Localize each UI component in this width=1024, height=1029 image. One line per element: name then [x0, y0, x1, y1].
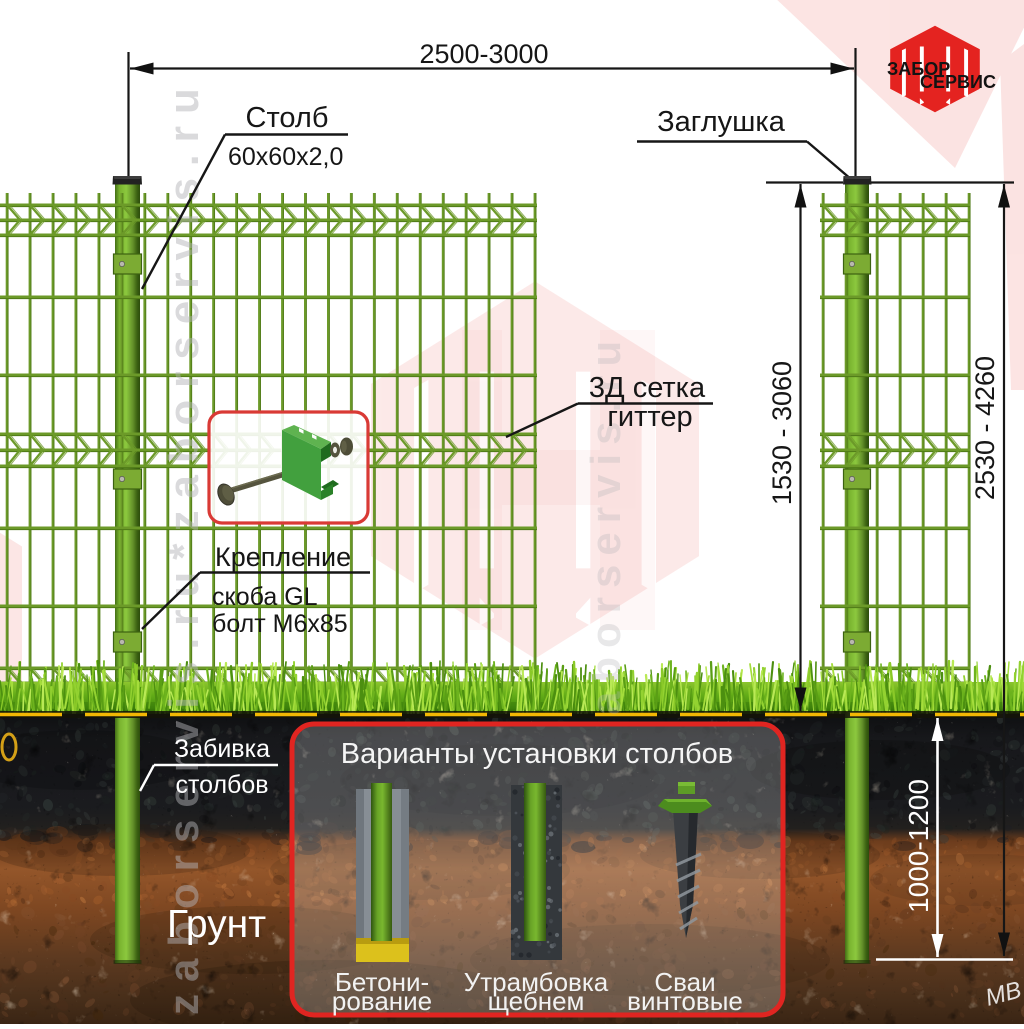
svg-text:Забивка: Забивка — [174, 735, 270, 763]
svg-text:zaborservis.ru*zaborservis.ru: zaborservis.ru*zaborservis.ru — [160, 76, 207, 1015]
svg-text:Столб: Столб — [246, 102, 329, 134]
svg-text:3Д сетка: 3Д сетка — [589, 372, 706, 404]
svg-text:Варианты установки столбов: Варианты установки столбов — [341, 738, 733, 770]
svg-text:скоба GL: скоба GL — [212, 583, 318, 611]
svg-text:столбов: столбов — [175, 771, 268, 799]
svg-text:рование: рование — [332, 986, 432, 1016]
svg-text:2530 - 4260: 2530 - 4260 — [970, 356, 1000, 500]
svg-text:Грунт: Грунт — [167, 903, 266, 946]
svg-text:СЕРВИС: СЕРВИС — [920, 72, 996, 92]
svg-text:Крепление: Крепление — [215, 542, 351, 572]
svg-text:1000-1200: 1000-1200 — [903, 779, 934, 913]
svg-text:винтовые: винтовые — [627, 986, 743, 1016]
svg-text:гиттер: гиттер — [607, 401, 692, 433]
svg-text:1530 - 3060: 1530 - 3060 — [767, 361, 797, 505]
svg-text:2500-3000: 2500-3000 — [419, 39, 548, 69]
svg-text:щебнем: щебнем — [488, 986, 585, 1016]
svg-text:Заглушка: Заглушка — [657, 106, 786, 138]
svg-text:болт М6х85: болт М6х85 — [212, 610, 348, 638]
svg-text:60х60х2,0: 60х60х2,0 — [228, 143, 343, 171]
